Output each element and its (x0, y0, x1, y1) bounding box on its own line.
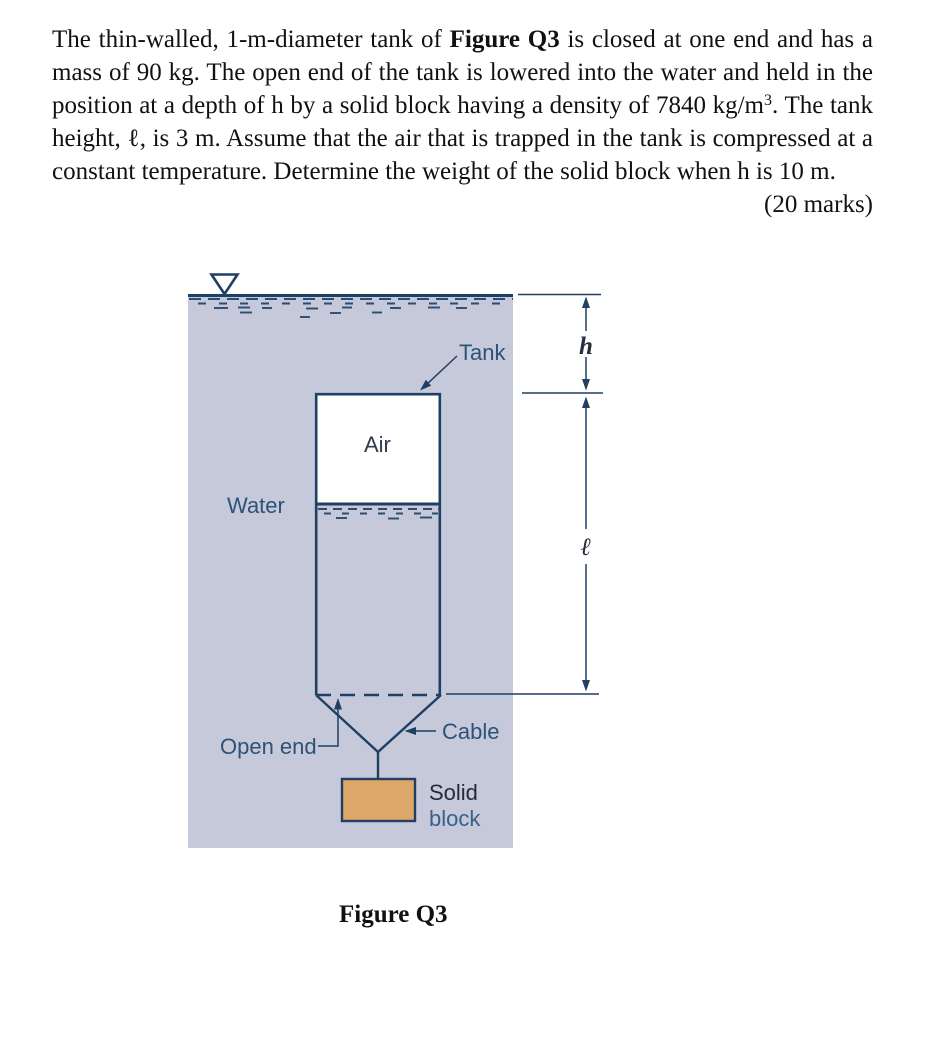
svg-text:Tank: Tank (459, 340, 506, 365)
svg-text:h: h (579, 333, 593, 360)
svg-text:Open end: Open end (220, 734, 317, 759)
svg-text:ℓ: ℓ (581, 534, 592, 561)
svg-text:Air: Air (364, 432, 391, 457)
svg-text:block: block (429, 806, 481, 831)
svg-text:Water: Water (227, 493, 285, 518)
svg-text:Solid: Solid (429, 780, 478, 805)
svg-text:Cable: Cable (442, 719, 499, 744)
